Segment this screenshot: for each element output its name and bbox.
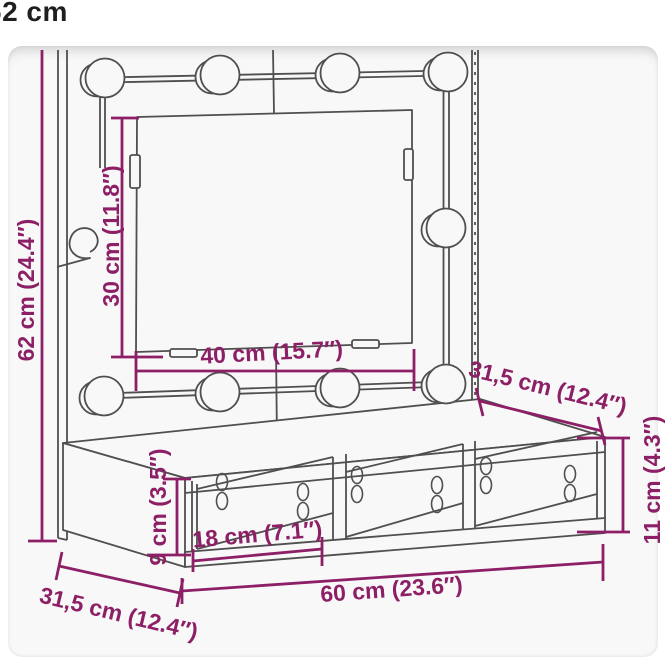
dim-mirror-height: 30 cm (11.8″) bbox=[98, 118, 163, 357]
mirror-clip bbox=[130, 155, 140, 188]
dim-cabinet-height-label: 11 cm (4.3″) bbox=[639, 416, 665, 545]
led-bulb bbox=[422, 365, 466, 404]
mirror-clip bbox=[170, 349, 197, 357]
led-bulb bbox=[316, 54, 360, 93]
led-bulb bbox=[196, 56, 240, 95]
dim-inner-height-label: 9 cm (3.5″) bbox=[145, 448, 171, 565]
mirror-clip bbox=[404, 149, 413, 180]
led-bulb bbox=[80, 377, 124, 416]
led-bulb bbox=[316, 369, 360, 408]
dim-mirror-height-label: 30 cm (11.8″) bbox=[98, 165, 124, 306]
led-bulb bbox=[196, 373, 240, 412]
cable-hole bbox=[217, 493, 228, 510]
dim-total-height: 62 cm (24.4″) bbox=[13, 50, 57, 541]
dim-mirror-width-label: 40 cm (15.7″) bbox=[200, 335, 344, 368]
furniture-diagram: 62 cm (24.4″) 30 cm (11.8″) 40 cm (15.7″… bbox=[0, 0, 670, 670]
cable-hole bbox=[432, 477, 443, 494]
cable-hole bbox=[298, 484, 309, 501]
mirror bbox=[130, 110, 413, 357]
led-bulb bbox=[422, 209, 466, 248]
dim-total-width-label: 60 cm (23.6″) bbox=[319, 571, 463, 607]
dim-bottom-depth: 31,5 cm (12.4″) bbox=[37, 552, 200, 645]
cable-hole bbox=[565, 466, 576, 483]
cable-hole bbox=[481, 477, 492, 494]
dim-total-height-label: 62 cm (24.4″) bbox=[13, 219, 39, 362]
led-bulb bbox=[81, 59, 125, 98]
mirror-clip bbox=[352, 340, 379, 348]
led-bulb bbox=[424, 53, 468, 92]
cable-hole bbox=[352, 486, 363, 503]
cable-hole bbox=[565, 485, 576, 502]
power-cord-hook bbox=[57, 228, 98, 267]
